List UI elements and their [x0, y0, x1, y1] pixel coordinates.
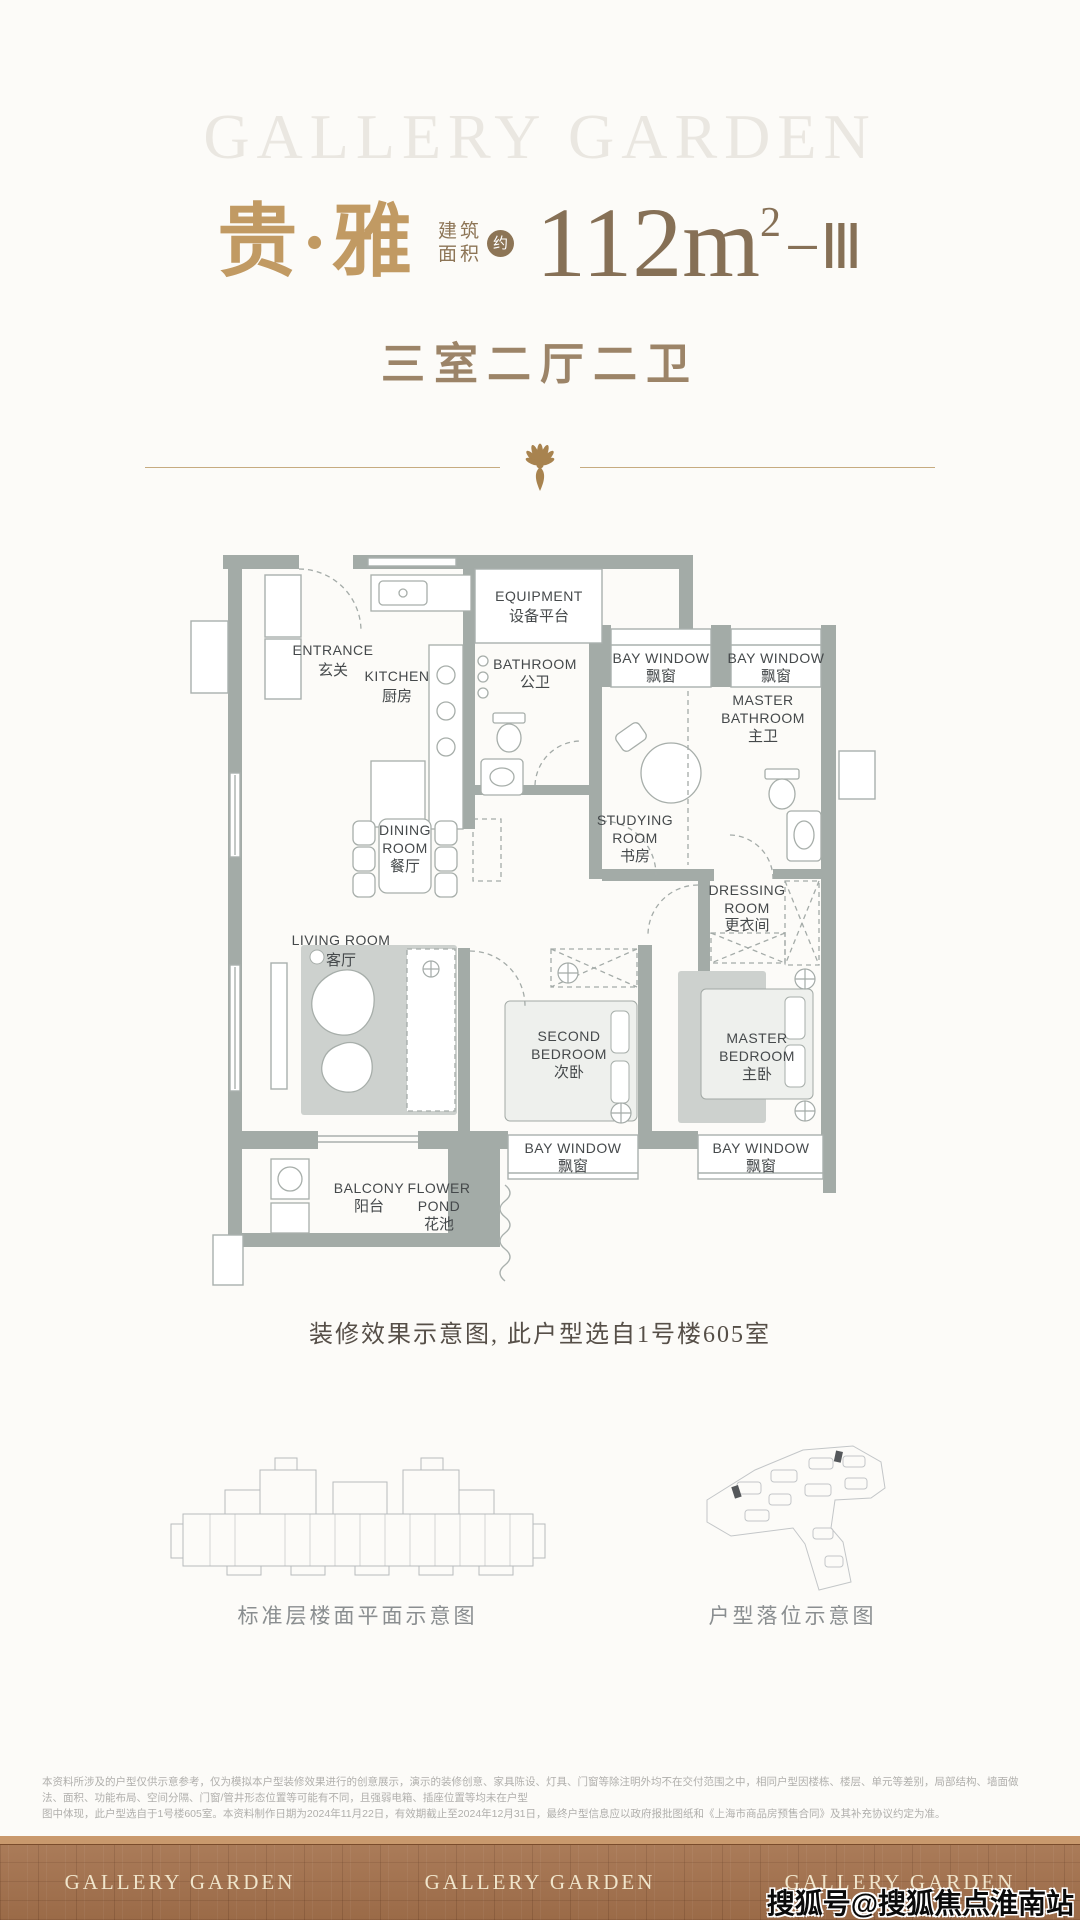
disclaimer: 本资料所涉及的户型仅供示意参考，仅为模拟本户型装修效果进行的创意展示，演示的装修…	[42, 1774, 1038, 1822]
bath-door-arc	[535, 741, 581, 785]
area-label: 建筑 面积 约	[438, 220, 514, 266]
poster-page: GALLERY GARDEN 贵·雅 建筑 面积 约 112m2−Ⅲ 三室二厅二…	[0, 0, 1080, 1920]
svg-text:ROOM: ROOM	[724, 900, 770, 916]
title-row: 贵·雅 建筑 面积 约 112m2−Ⅲ	[0, 178, 1080, 308]
plan-caption: 装修效果示意图, 此户型选自1号楼605室	[0, 1314, 1080, 1349]
svg-text:更衣间: 更衣间	[724, 917, 769, 934]
svg-text:厨房: 厨房	[382, 688, 412, 705]
footer-top-strip	[0, 1836, 1080, 1845]
divider-line-right	[580, 467, 935, 468]
svg-text:飘窗: 飘窗	[761, 667, 791, 685]
site-location-caption: 户型落位示意图	[685, 1600, 900, 1630]
master-toilet-bowl	[769, 779, 795, 809]
label-second-bedroom: SECOND	[538, 1028, 601, 1044]
label-living-room: LIVING ROOM	[292, 932, 391, 948]
svg-text:BATHROOM: BATHROOM	[721, 710, 805, 726]
label-entrance: ENTRANCE	[292, 642, 373, 658]
area-superscript: 2	[760, 202, 781, 244]
label-dressing-room: DRESSING	[708, 882, 785, 898]
svg-text:飘窗: 飘窗	[746, 1157, 776, 1175]
study-table	[641, 743, 701, 803]
area-label-line2: 面积	[438, 243, 482, 266]
pillow	[611, 1061, 629, 1103]
svg-text:设备平台: 设备平台	[509, 608, 569, 625]
unit-marker	[731, 1485, 741, 1499]
label-master-bedroom: MASTER	[726, 1030, 787, 1046]
unit-marker	[834, 1450, 843, 1462]
svg-text:餐厅: 餐厅	[390, 858, 420, 875]
footer-brand-center: GALLERY GARDEN	[425, 1870, 656, 1895]
area-suffix: −Ⅲ	[785, 217, 863, 279]
floor-lamp	[310, 950, 324, 964]
approx-badge: 约	[487, 230, 514, 257]
svg-text:花池: 花池	[424, 1216, 454, 1233]
master-toilet-tank	[765, 769, 799, 779]
svg-text:次卧: 次卧	[554, 1064, 584, 1081]
svg-text:POND: POND	[418, 1198, 460, 1214]
study-chair	[614, 721, 648, 753]
site-location-diagram	[685, 1436, 900, 1594]
floor-plate-diagram	[165, 1446, 550, 1591]
label-dining-room: DINING	[379, 822, 431, 838]
svg-text:阳台: 阳台	[354, 1198, 384, 1215]
svg-text:飘窗: 飘窗	[646, 667, 676, 685]
hall-cabinet	[473, 819, 501, 881]
label-studying-room: STUDYING	[597, 812, 673, 828]
disclaimer-line1: 本资料所涉及的户型仅供示意参考，仅为模拟本户型装修效果进行的创意展示，演示的装修…	[42, 1774, 1038, 1806]
svg-text:公卫: 公卫	[520, 674, 550, 691]
ornamental-divider	[0, 430, 1080, 490]
pillow	[785, 997, 805, 1039]
svg-text:飘窗: 飘窗	[558, 1157, 588, 1175]
sohu-watermark: 搜狐号@搜狐焦点淮南站	[767, 1882, 1074, 1920]
svg-text:BEDROOM: BEDROOM	[719, 1048, 795, 1064]
svg-text:书房: 书房	[620, 848, 650, 865]
entry-door-arc	[299, 569, 361, 631]
footer-brand-left: GALLERY GARDEN	[65, 1870, 296, 1895]
svg-text:ROOM: ROOM	[382, 840, 428, 856]
divider-line-left	[145, 467, 500, 468]
label-balcony: BALCONY	[334, 1180, 405, 1196]
toilet-bowl	[497, 724, 521, 752]
secbed-door-arc	[470, 951, 525, 1006]
svg-text:客厅: 客厅	[326, 952, 356, 969]
svg-text:ROOM: ROOM	[612, 830, 658, 846]
toilet-tank	[493, 713, 525, 723]
background-watermark: GALLERY GARDEN	[0, 100, 1080, 174]
area-number: 112m	[536, 187, 760, 298]
svg-text:玄关: 玄关	[318, 662, 348, 679]
dressing-door-arc	[648, 885, 698, 935]
svg-text:主卫: 主卫	[748, 728, 778, 745]
masterbath-door-arc	[729, 835, 773, 879]
label-master-bathroom: MASTER	[732, 692, 793, 708]
label-bay-window-master: BAY WINDOW	[712, 1140, 809, 1156]
disclaimer-line2: 图中体现，此户型选自于1号楼605室。本资料制作日期为2024年11月22日，有…	[42, 1806, 1038, 1822]
layout-subtitle: 三室二厅二卫	[0, 328, 1080, 392]
palmette-icon	[518, 440, 562, 492]
floor-plan-svg: ENTRANCE 玄关 KITCHEN 厨房 EQUIPMENT 设备平台 BA…	[183, 533, 903, 1303]
svg-text:BEDROOM: BEDROOM	[531, 1046, 607, 1062]
pillow	[611, 1011, 629, 1053]
sofa-blob-2	[322, 1043, 372, 1093]
label-equipment: EQUIPMENT	[495, 588, 583, 604]
plan-name: 贵·雅	[217, 203, 416, 283]
label-bay-window-study: BAY WINDOW	[612, 650, 709, 666]
label-kitchen: KITCHEN	[365, 668, 430, 684]
fridge	[371, 761, 425, 827]
area-value: 112m2−Ⅲ	[536, 193, 863, 293]
area-label-line1: 建筑	[438, 220, 482, 243]
label-flower-pond: FLOWER	[408, 1180, 471, 1196]
svg-text:主卧: 主卧	[742, 1066, 772, 1083]
floor-plan: ENTRANCE 玄关 KITCHEN 厨房 EQUIPMENT 设备平台 BA…	[183, 533, 903, 1303]
label-bathroom: BATHROOM	[493, 656, 577, 672]
floor-plate-caption: 标准层楼面平面示意图	[165, 1600, 550, 1630]
label-bay-window-masterbath: BAY WINDOW	[727, 650, 824, 666]
label-bay-window-secbed: BAY WINDOW	[524, 1140, 621, 1156]
